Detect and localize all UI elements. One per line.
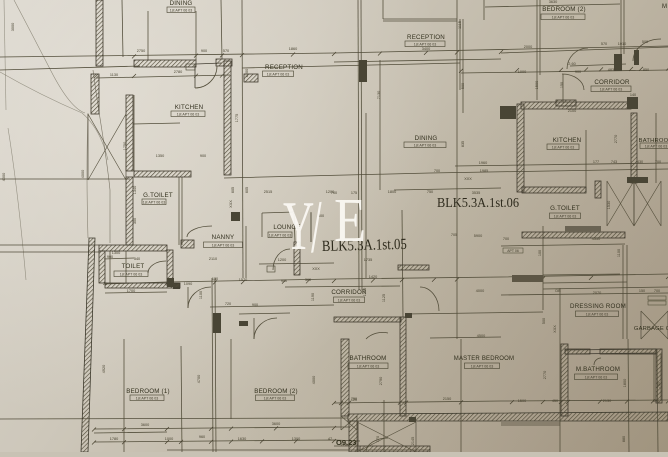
svg-text:1st APT 06 03: 1st APT 06 03: [143, 200, 166, 204]
svg-text:450: 450: [552, 399, 558, 403]
svg-text:4000: 4000: [312, 376, 316, 384]
svg-text:1775: 1775: [235, 114, 239, 122]
svg-text:600: 600: [653, 399, 659, 403]
svg-text:G.TOILET: G.TOILET: [550, 205, 580, 212]
svg-text:1st APT 06 03: 1st APT 06 03: [552, 15, 575, 19]
svg-text:1190: 1190: [311, 293, 315, 301]
svg-text:1st APT 06 03: 1st APT 06 03: [212, 243, 235, 247]
svg-text:1420: 1420: [369, 275, 377, 279]
svg-text:3000: 3000: [11, 23, 15, 31]
svg-text:GARBAGE C: GARBAGE C: [634, 326, 668, 332]
svg-text:570: 570: [223, 49, 229, 53]
svg-text:KITCHEN: KITCHEN: [553, 137, 582, 144]
svg-text:150: 150: [560, 82, 564, 88]
svg-text:177: 177: [593, 160, 599, 164]
svg-text:5900: 5900: [474, 234, 482, 238]
svg-text:900: 900: [281, 279, 287, 283]
svg-text:700: 700: [434, 169, 440, 173]
svg-text:1700: 1700: [127, 289, 135, 293]
svg-text:900: 900: [200, 154, 206, 158]
svg-text:300: 300: [133, 218, 137, 224]
svg-text:500: 500: [642, 40, 648, 44]
svg-text:1st APT 06 03: 1st APT 06 03: [554, 214, 577, 218]
svg-text:100: 100: [538, 250, 542, 256]
svg-text:4000: 4000: [476, 289, 484, 293]
svg-text:1500: 1500: [518, 399, 526, 403]
svg-text:700: 700: [503, 237, 509, 241]
svg-text:M.BATHROOM: M.BATHROOM: [576, 366, 620, 373]
svg-text:743: 743: [611, 160, 617, 164]
svg-text:2000: 2000: [524, 45, 532, 49]
svg-text:900: 900: [575, 70, 581, 74]
svg-text:705: 705: [451, 233, 457, 237]
svg-text:4700: 4700: [197, 375, 201, 383]
svg-text:1750: 1750: [123, 142, 127, 150]
svg-text:2150: 2150: [443, 397, 451, 401]
svg-text:3600: 3600: [141, 423, 149, 427]
svg-text:3400: 3400: [422, 47, 430, 51]
svg-text:1350: 1350: [156, 154, 164, 158]
svg-text:CORRIDOR: CORRIDOR: [594, 79, 630, 86]
svg-text:3535: 3535: [472, 191, 480, 195]
svg-text:880: 880: [622, 436, 626, 442]
svg-text:4000: 4000: [81, 170, 85, 178]
svg-text:2780: 2780: [174, 70, 182, 74]
svg-text:1130: 1130: [110, 73, 118, 77]
svg-text:4550: 4550: [592, 237, 600, 241]
svg-text:900: 900: [107, 255, 113, 259]
svg-text:RECEPTION: RECEPTION: [265, 64, 303, 71]
svg-text:150: 150: [639, 289, 645, 293]
svg-text:850: 850: [643, 68, 649, 72]
svg-text:1st APT 06 03: 1st APT 06 03: [264, 396, 287, 400]
svg-text:750: 750: [427, 190, 433, 194]
svg-text:4000: 4000: [2, 173, 6, 181]
svg-text:1st APT 06 03: 1st APT 06 03: [414, 42, 437, 46]
svg-text:7130: 7130: [377, 91, 381, 99]
svg-text:500: 500: [542, 318, 546, 324]
svg-text:1300: 1300: [292, 437, 300, 441]
svg-text:3600: 3600: [272, 422, 280, 426]
svg-text:1530: 1530: [607, 201, 611, 209]
svg-text:4830: 4830: [608, 68, 616, 72]
svg-text:130: 130: [212, 277, 218, 281]
svg-text:2070: 2070: [593, 291, 601, 295]
svg-text:M: M: [662, 4, 667, 10]
svg-text:BEDROOM (2): BEDROOM (2): [542, 6, 585, 13]
svg-text:KITCHEN: KITCHEN: [175, 104, 204, 111]
svg-text:605: 605: [245, 187, 249, 193]
svg-text:1st APT 06 03: 1st APT 06 03: [586, 312, 609, 316]
svg-text:1st APT 06 03: 1st APT 06 03: [170, 8, 193, 12]
svg-text:570: 570: [601, 42, 607, 46]
svg-text:1st APT 06 03: 1st APT 06 03: [357, 364, 380, 368]
svg-text:1st APT 06 03: 1st APT 06 03: [585, 375, 608, 379]
svg-text:960: 960: [199, 435, 205, 439]
svg-text:8200: 8200: [245, 69, 249, 77]
svg-text:1630: 1630: [238, 437, 246, 441]
svg-text:1st APT 06 03: 1st APT 06 03: [471, 364, 494, 368]
svg-text:1000: 1000: [165, 437, 173, 441]
svg-text:1090: 1090: [184, 282, 192, 286]
svg-text:RECEPTION: RECEPTION: [407, 34, 445, 41]
svg-text:XXX: XXX: [229, 200, 233, 208]
svg-text:TOILET: TOILET: [122, 263, 145, 270]
svg-text:2110: 2110: [209, 257, 217, 261]
svg-text:DRESSING ROOM: DRESSING ROOM: [570, 303, 626, 310]
svg-text:MASTER BEDROOM: MASTER BEDROOM: [454, 356, 514, 362]
svg-text:DINING: DINING: [170, 0, 193, 7]
svg-text:1st APT 06 03: 1st APT 06 03: [414, 143, 437, 147]
svg-text:BEDROOM (2): BEDROOM (2): [254, 388, 297, 395]
svg-text:1st APT 06 03: 1st APT 06 03: [645, 144, 668, 148]
svg-text:1340: 1340: [133, 186, 137, 194]
svg-text:NANNY: NANNY: [212, 234, 235, 241]
svg-text:2770: 2770: [614, 135, 618, 143]
svg-text:1800: 1800: [388, 190, 396, 194]
svg-text:605: 605: [231, 187, 235, 193]
svg-text:E: E: [334, 187, 366, 255]
svg-text:47: 47: [328, 437, 332, 441]
svg-text:1100: 1100: [199, 291, 203, 299]
svg-text:1000: 1000: [518, 70, 526, 74]
svg-text:XXX: XXX: [464, 177, 472, 181]
svg-text:720: 720: [225, 302, 231, 306]
svg-text:1780: 1780: [110, 437, 118, 441]
svg-text:4920: 4920: [102, 365, 106, 373]
svg-text:1st APT 06 03: 1st APT 06 03: [267, 72, 290, 76]
svg-text:1st APT 06 03: 1st APT 06 03: [338, 298, 361, 302]
svg-text:4500: 4500: [477, 334, 485, 338]
svg-text:APT 06: APT 06: [507, 249, 519, 253]
svg-text:1860: 1860: [289, 47, 297, 51]
svg-text:BEDROOM (1): BEDROOM (1): [126, 388, 169, 395]
svg-text:1st APT 06 03: 1st APT 06 03: [120, 272, 143, 276]
svg-text:BATHROOM: BATHROOM: [350, 355, 387, 362]
svg-text:1010: 1010: [618, 42, 626, 46]
svg-text:120: 120: [351, 398, 357, 402]
svg-text:CORRIDOR: CORRIDOR: [331, 289, 367, 296]
svg-text:1115: 1115: [458, 21, 462, 29]
svg-text:2130: 2130: [603, 399, 611, 403]
svg-text:1800: 1800: [623, 379, 627, 387]
svg-text:2100: 2100: [568, 109, 576, 113]
svg-text:1784: 1784: [341, 443, 349, 447]
svg-text:1985: 1985: [480, 169, 488, 173]
svg-text:700: 700: [654, 289, 660, 293]
svg-text:1570: 1570: [239, 278, 247, 282]
svg-text:1500: 1500: [535, 81, 539, 89]
svg-text:1st APT 06 03: 1st APT 06 03: [177, 112, 200, 116]
svg-text:1735: 1735: [364, 258, 372, 262]
svg-text:DB: DB: [555, 289, 561, 293]
svg-text:1st APT 06 03: 1st APT 06 03: [552, 145, 575, 149]
svg-text:700: 700: [655, 160, 661, 164]
svg-text:170: 170: [376, 436, 380, 442]
svg-text:540: 540: [134, 257, 140, 261]
svg-text:2750: 2750: [137, 49, 145, 53]
svg-text:2515: 2515: [264, 190, 272, 194]
svg-text:2770: 2770: [543, 371, 547, 379]
svg-text:2790: 2790: [379, 377, 383, 385]
svg-text:DINING: DINING: [415, 135, 438, 142]
svg-text:140: 140: [630, 93, 636, 97]
svg-text:900: 900: [252, 303, 258, 307]
svg-text:835: 835: [461, 141, 465, 147]
svg-text:1100: 1100: [617, 249, 621, 257]
svg-text:1300: 1300: [363, 288, 367, 296]
svg-text:900: 900: [201, 49, 207, 53]
svg-text:BLK5.3A.1st.06: BLK5.3A.1st.06: [437, 195, 519, 210]
svg-text:1st APT 06 03: 1st APT 06 03: [136, 396, 159, 400]
svg-text:XXX: XXX: [553, 325, 557, 333]
svg-text:2.60: 2.60: [568, 62, 575, 66]
svg-text:2145: 2145: [411, 437, 415, 445]
svg-text:430: 430: [637, 160, 643, 164]
svg-text:1st APT 06 03: 1st APT 06 03: [600, 87, 623, 91]
svg-text:360: 360: [305, 278, 311, 282]
svg-text:3630: 3630: [549, 0, 557, 4]
svg-text:700: 700: [657, 382, 661, 388]
svg-text:500: 500: [461, 83, 465, 89]
svg-text:G.TOILET: G.TOILET: [143, 192, 173, 199]
svg-text:22: 22: [103, 282, 107, 286]
svg-text:1960: 1960: [479, 161, 487, 165]
svg-text:1125: 1125: [382, 294, 386, 302]
